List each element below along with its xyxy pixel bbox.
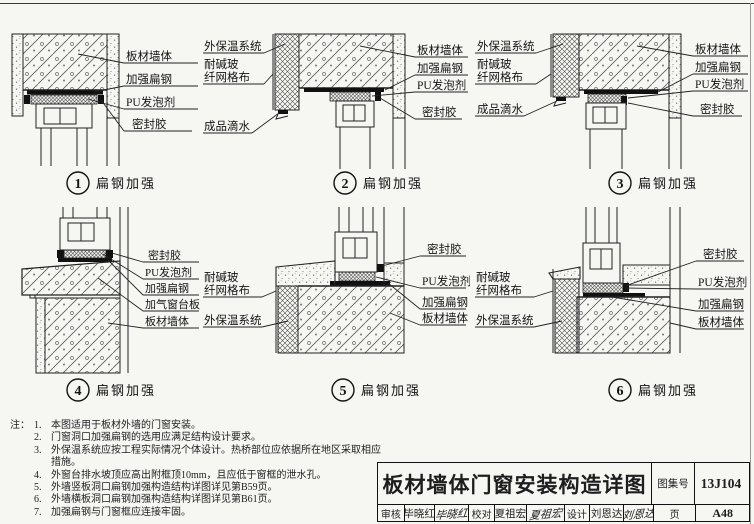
checker-signature: 夏祖宏 (526, 505, 564, 522)
callout-label: 成品滴水 (204, 119, 250, 133)
sheet-title: 板材墙体门窗安装构造详图 (378, 463, 651, 504)
panel-wall (577, 297, 670, 353)
flat-steel-bar (58, 258, 112, 262)
note-item: 7. 加强扁钢与门窗框应连接牢固。 (34, 507, 388, 519)
interior-render-strip (669, 34, 681, 118)
notes-block: 注： 1. 本图适用于板材外墙的门窗安装。 2. 门窗洞口加强扁钢的选用应满足结… (10, 420, 388, 519)
callout-label: PU发泡剂 (698, 275, 747, 289)
detail-5-drawing (276, 207, 404, 353)
pu-foam-strip (339, 272, 375, 281)
callout-label: 成品滴水 (477, 102, 523, 116)
insulation-board (278, 286, 298, 353)
callout-label: 密封胶 (703, 247, 738, 261)
atlas-number-label: 图集号 (651, 463, 694, 504)
sealant-left (57, 250, 64, 258)
detail-caption: 扁钢加强 (96, 176, 156, 191)
callout-label: 加强扁钢 (145, 282, 189, 295)
detail-caption: 扁钢加强 (96, 383, 156, 398)
panel-wall (298, 286, 404, 353)
page-label: 页 (653, 505, 696, 522)
designer-signature: 刘恩达 (623, 505, 653, 522)
reviewer-name: 毕晓红 (404, 505, 434, 522)
callout-label: 纤网格布 (204, 70, 250, 84)
detail-3-window-head: 外保温系统 耐碱玻 纤网格布 成品滴水 板材墙体 加强扁钢 PU发泡剂 密封胶 … (472, 24, 754, 200)
interior-render-strip (384, 263, 404, 286)
flat-steel-bar (27, 91, 103, 95)
drip-edge (278, 110, 288, 114)
design-label: 设计 (564, 505, 590, 522)
sealant (375, 92, 381, 101)
callout-label: 耐碱玻 (204, 271, 239, 284)
callout-label: 纤网格布 (476, 283, 522, 297)
insulation-board (555, 279, 579, 353)
callout-label: 外保温系统 (204, 39, 262, 53)
review-label: 审核 (378, 505, 404, 522)
flat-steel-bar (584, 90, 658, 94)
callout-label: 板材墙体 (698, 315, 744, 329)
flat-steel-bar (304, 88, 384, 92)
detail-3-drawing (551, 34, 681, 169)
sealant-left (24, 95, 30, 104)
detail-1-drawing (12, 34, 119, 166)
callout-label: 加强扁钢 (698, 298, 744, 311)
detail-number: 1 (75, 177, 82, 192)
aerated-sill-board (22, 261, 120, 295)
interior-render-strip (107, 34, 119, 118)
title-block: 板材墙体门窗安装构造详图 图集号 13J104 审核 毕晓红 毕晓红 校对 夏祖… (377, 462, 750, 522)
callout-label: 加强扁钢 (422, 296, 468, 309)
detail-caption: 扁钢加强 (363, 176, 423, 191)
callout-label: PU发泡剂 (126, 95, 175, 109)
atlas-drawing-page: 板材墙体 加强扁钢 PU发泡剂 密封胶 1 扁钢加强 (0, 0, 754, 524)
callout-label: 密封胶 (132, 117, 167, 131)
callout-label: 纤网格布 (204, 283, 250, 297)
designer-name: 刘恩达 (589, 505, 623, 522)
callout-label: 密封胶 (422, 105, 457, 119)
detail-1-window-head: 板材墙体 加强扁钢 PU发泡剂 密封胶 1 扁钢加强 (8, 24, 200, 200)
callout-label: 外保温系统 (476, 313, 534, 327)
sill-render-slope (276, 261, 335, 286)
interior-render-strip (393, 34, 405, 118)
callout-label: 板材墙体 (145, 314, 189, 328)
atlas-number-value: 13J104 (694, 463, 747, 504)
callout-label: 板材墙体 (417, 43, 463, 57)
note-item: 5. 外墙竖板洞口扁钢加强构造结构详图详见第B59页。 (34, 482, 388, 494)
callout-label: 耐碱玻 (477, 58, 512, 71)
callout-label: 加强扁钢 (695, 61, 741, 74)
note-item: 2. 门窗洞口加强扁钢的选用应满足结构设计要求。 (34, 432, 388, 444)
detail-6-drawing (549, 207, 680, 353)
detail-4-drawing (22, 207, 128, 373)
drip-notch (30, 295, 35, 298)
detail-number: 6 (617, 384, 624, 399)
detail-number: 3 (617, 177, 624, 192)
note-item: 1. 本图适用于板材外墙的门窗安装。 (34, 420, 388, 432)
callout-label: PU发泡剂 (417, 78, 466, 92)
sealant (377, 264, 384, 272)
interior-render-strip (623, 265, 670, 285)
title-block-row-2: 审核 毕晓红 毕晓红 校对 夏祖宏 夏祖宏 设计 刘恩达 刘恩达 页 A48 (378, 504, 749, 522)
note-item: 3. 外保温系统应按工程实际情况个体设计。热桥部位应依据所在地区采取相应措施。 (34, 445, 388, 470)
detail-number: 4 (75, 384, 82, 399)
callout-label: 耐碱玻 (204, 58, 239, 71)
sill-render-slope (549, 267, 580, 279)
callout-label: 板材墙体 (126, 49, 172, 63)
insulation-board (553, 34, 579, 97)
callout-label: PU发泡剂 (145, 265, 192, 279)
detail-5-window-sill: 耐碱玻 纤网格布 外保温系统 密封胶 PU发泡剂 加强扁钢 板材墙体 5 扁钢加… (200, 203, 470, 408)
callout-label: PU发泡剂 (422, 274, 470, 288)
flat-steel-bar (330, 281, 390, 286)
pu-foam-strip (330, 92, 370, 101)
reviewer-signature: 毕晓红 (434, 505, 469, 522)
detail-number: 2 (342, 177, 349, 192)
pu-foam-strip (583, 283, 623, 293)
callout-label: 板材墙体 (422, 311, 468, 325)
callout-label: 密封胶 (700, 102, 735, 116)
note-item: 4. 外窗台排水坡顶应高出附框顶10mm，且应低于窗框的泄水孔。 (34, 470, 388, 482)
pu-foam-strip (31, 95, 97, 104)
title-block-row-1: 板材墙体门窗安装构造详图 图集号 13J104 (378, 463, 749, 504)
panel-wall (45, 298, 120, 373)
checker-name: 夏祖宏 (494, 505, 526, 522)
detail-6-window-sill: 耐碱玻 纤网格布 外保温系统 密封胶 PU发泡剂 加强扁钢 板材墙体 6 扁钢加… (472, 203, 754, 408)
detail-caption: 扁钢加强 (361, 383, 421, 398)
panel-wall-lintel (579, 34, 669, 90)
callout-label: 外保温系统 (204, 313, 262, 327)
detail-caption: 扁钢加强 (638, 176, 698, 191)
exterior-render-strip (36, 298, 45, 373)
page-number: A48 (695, 505, 749, 522)
detail-number: 5 (340, 384, 347, 399)
callout-label: 纤网格布 (477, 70, 523, 84)
notes-list: 1. 本图适用于板材外墙的门窗安装。 2. 门窗洞口加强扁钢的选用应满足结构设计… (34, 420, 388, 519)
check-label: 校对 (468, 505, 494, 522)
callout-label: 密封胶 (148, 248, 181, 262)
drip-edge (556, 97, 566, 101)
callout-label: 加强扁钢 (126, 73, 172, 86)
pu-foam-strip (64, 250, 106, 258)
callout-label: 板材墙体 (695, 42, 741, 56)
callout-label: PU发泡剂 (695, 77, 744, 91)
callout-label: 加气窗台板 (145, 297, 200, 311)
callout-label: 外保温系统 (477, 39, 535, 53)
exterior-render-strip (12, 34, 23, 116)
page-frame-top (0, 3, 754, 4)
detail-2-window-head: 外保温系统 耐碱玻 纤网格布 成品滴水 板材墙体 加强扁钢 PU发泡剂 密封胶 … (200, 24, 470, 200)
callout-label: 密封胶 (427, 242, 462, 256)
detail-4-window-sill: 密封胶 PU发泡剂 加强扁钢 加气窗台板 板材墙体 4 扁钢加强 (8, 203, 200, 408)
pu-foam-strip (588, 94, 626, 103)
notes-prefix: 注： (10, 420, 34, 519)
callout-label: 加强扁钢 (417, 62, 463, 75)
note-item: 6. 外墙横板洞口扁钢加强构造结构详图详见第B61页。 (34, 494, 388, 506)
detail-caption: 扁钢加强 (638, 383, 698, 398)
panel-wall-lintel (23, 34, 107, 90)
panel-wall-lintel (299, 34, 393, 88)
insulation-board (275, 34, 299, 110)
callout-label: 耐碱玻 (476, 271, 511, 284)
